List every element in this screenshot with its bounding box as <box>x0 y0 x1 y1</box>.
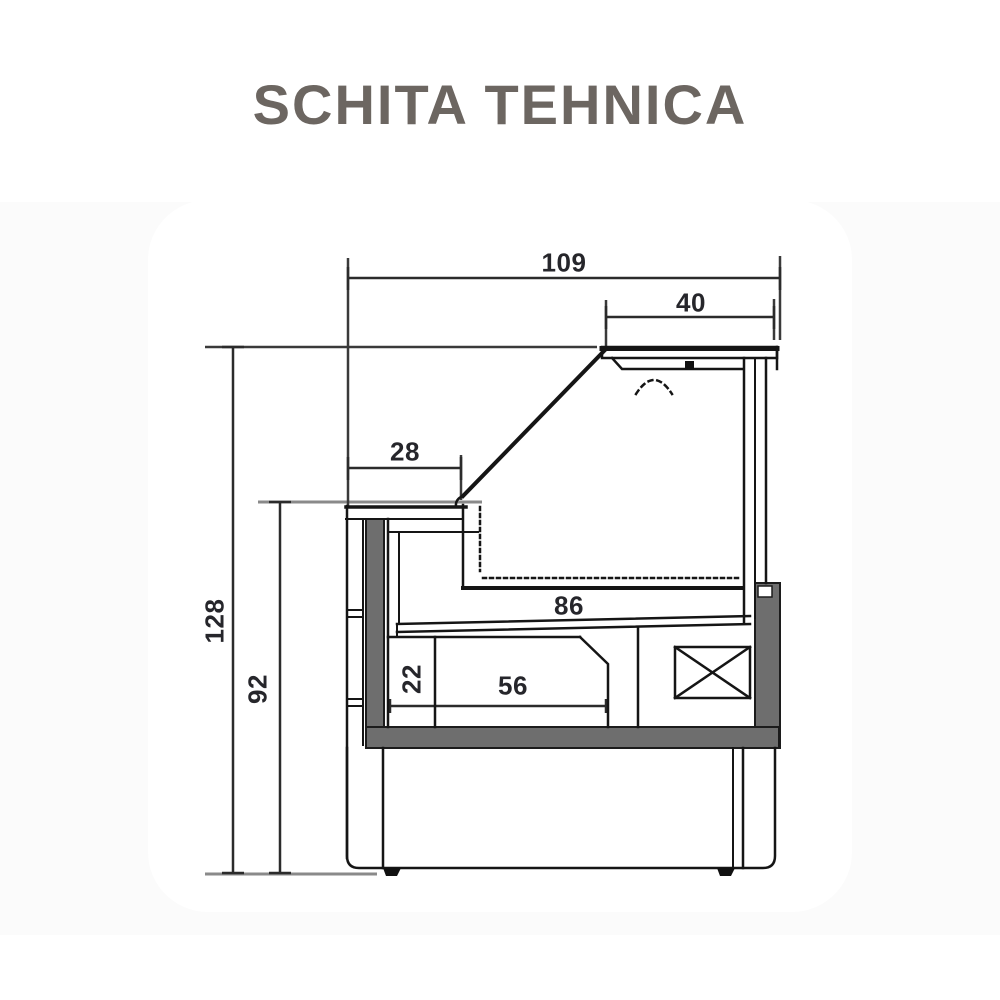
dim-label-canopy-width: 40 <box>676 288 706 319</box>
lid-clip <box>685 361 694 370</box>
bottom-panel <box>366 727 779 748</box>
dim-label-deck-width: 86 <box>554 591 584 622</box>
plinth <box>347 748 775 868</box>
duct-notch <box>758 586 772 597</box>
dim-label-total-width: 109 <box>542 248 587 279</box>
dim-label-worktop-height: 92 <box>243 674 274 704</box>
left-foot <box>383 868 401 876</box>
dim-label-compartment-height: 22 <box>397 664 428 694</box>
condensing-unit-box <box>675 647 750 698</box>
dim-label-compartment-width: 56 <box>498 671 528 702</box>
technical-drawing <box>0 0 1000 1000</box>
insulation-panels <box>366 519 780 748</box>
technical-sheet: SCHITA TEHNICA <box>0 0 1000 1000</box>
lid-swing-arc <box>636 380 672 394</box>
right-wall-panel <box>755 583 780 748</box>
dim-label-front-depth: 28 <box>390 437 420 468</box>
dim-label-total-height: 128 <box>200 599 231 644</box>
slanted-glass <box>463 350 605 496</box>
left-wall-panel <box>366 519 384 748</box>
right-foot <box>717 868 735 876</box>
